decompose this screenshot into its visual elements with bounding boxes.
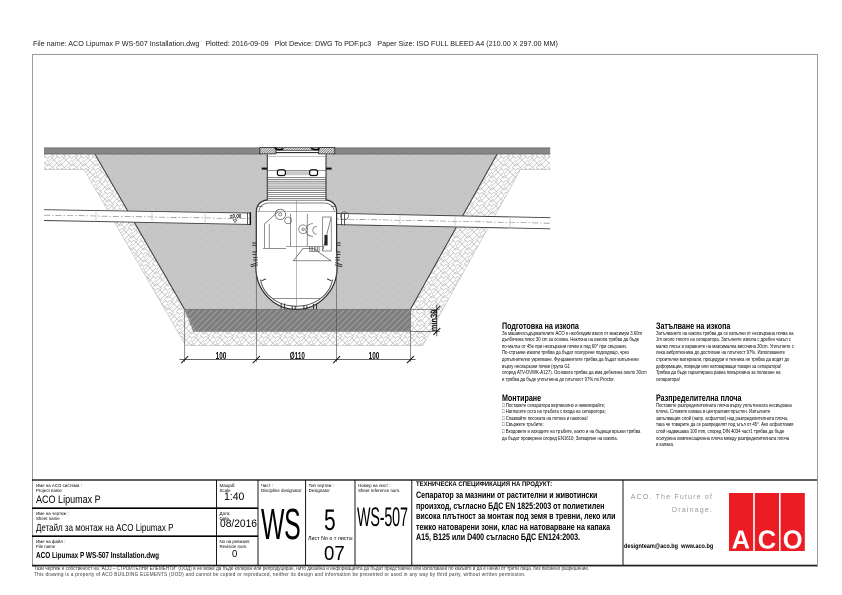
svg-text:C: C	[757, 526, 775, 551]
svg-text:A: A	[731, 526, 749, 551]
svg-text:O: O	[782, 526, 802, 551]
